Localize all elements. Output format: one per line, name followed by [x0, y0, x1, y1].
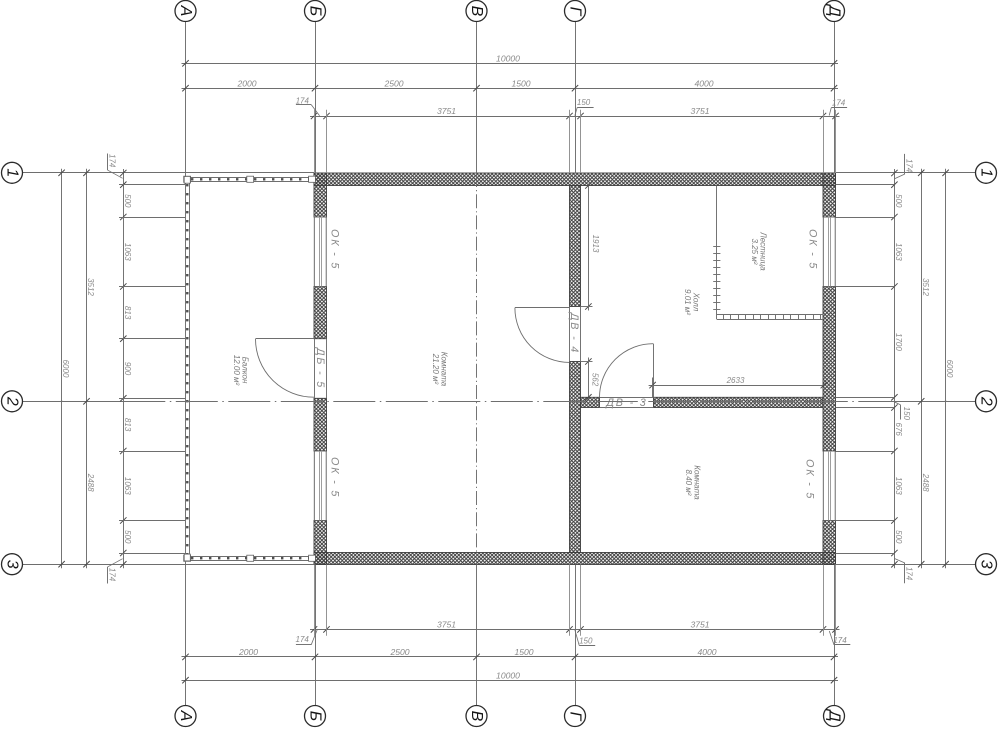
svg-text:Г: Г [567, 712, 584, 722]
svg-text:ДВ - 3: ДВ - 3 [605, 397, 647, 409]
svg-text:10000: 10000 [496, 53, 520, 63]
svg-text:1063: 1063 [894, 477, 903, 495]
svg-text:6000: 6000 [61, 360, 70, 378]
svg-text:174: 174 [107, 568, 116, 582]
svg-text:900: 900 [123, 362, 132, 376]
svg-text:2: 2 [4, 396, 21, 406]
svg-text:2500: 2500 [389, 647, 409, 657]
svg-text:А: А [177, 5, 194, 17]
svg-text:ОК - 5: ОК - 5 [807, 229, 819, 270]
svg-text:ДВ - 4: ДВ - 4 [568, 312, 580, 354]
svg-text:174: 174 [904, 567, 913, 581]
svg-text:3751: 3751 [437, 620, 456, 630]
svg-text:3751: 3751 [690, 620, 709, 630]
svg-text:4000: 4000 [697, 647, 716, 657]
svg-text:1063: 1063 [894, 243, 903, 261]
svg-text:10000: 10000 [496, 670, 520, 680]
svg-text:500: 500 [123, 194, 132, 208]
svg-text:2633: 2633 [726, 376, 745, 385]
svg-text:8.40 м²: 8.40 м² [684, 470, 693, 496]
svg-text:Д: Д [826, 3, 843, 16]
svg-text:813: 813 [123, 418, 132, 432]
svg-text:2488: 2488 [921, 473, 930, 492]
svg-text:А: А [177, 710, 194, 722]
svg-text:6000: 6000 [945, 360, 954, 378]
svg-text:813: 813 [123, 306, 132, 320]
svg-text:2: 2 [978, 396, 995, 406]
svg-text:Г: Г [567, 7, 584, 17]
svg-text:ОК - 5: ОК - 5 [329, 229, 341, 270]
svg-text:12.00 м²: 12.00 м² [232, 355, 241, 386]
svg-text:500: 500 [894, 530, 903, 544]
svg-text:3: 3 [4, 560, 21, 569]
svg-text:150: 150 [902, 407, 911, 421]
svg-text:9.01 м²: 9.01 м² [683, 289, 692, 315]
svg-text:1913: 1913 [591, 235, 600, 253]
svg-text:В: В [468, 711, 485, 722]
svg-text:2488: 2488 [86, 473, 95, 492]
svg-text:4000: 4000 [694, 78, 713, 88]
svg-text:3751: 3751 [690, 106, 709, 116]
svg-text:174: 174 [904, 159, 913, 173]
svg-text:1700: 1700 [894, 333, 903, 351]
svg-text:562: 562 [591, 373, 600, 387]
svg-text:1500: 1500 [514, 647, 533, 657]
svg-text:ОК - 5: ОК - 5 [804, 459, 816, 500]
svg-text:1: 1 [4, 168, 21, 177]
svg-text:500: 500 [123, 530, 132, 544]
svg-text:2500: 2500 [383, 78, 403, 88]
svg-text:500: 500 [894, 194, 903, 208]
svg-text:Б: Б [307, 711, 324, 721]
svg-text:150: 150 [579, 636, 593, 645]
svg-text:В: В [468, 6, 485, 17]
svg-text:174: 174 [832, 98, 846, 107]
svg-text:2000: 2000 [238, 647, 258, 657]
svg-text:174: 174 [833, 636, 847, 645]
svg-text:1063: 1063 [123, 243, 132, 261]
svg-text:3512: 3512 [921, 278, 930, 296]
svg-text:ДБ - 5: ДБ - 5 [314, 347, 326, 389]
svg-text:3: 3 [978, 560, 995, 569]
svg-text:1063: 1063 [123, 477, 132, 495]
svg-text:21.20 м²: 21.20 м² [431, 353, 440, 385]
svg-text:Б: Б [307, 6, 324, 16]
svg-text:ОК - 5: ОК - 5 [329, 457, 341, 498]
svg-text:1: 1 [978, 168, 995, 177]
svg-text:3.25 м²: 3.25 м² [750, 239, 759, 265]
svg-text:1500: 1500 [511, 78, 530, 88]
svg-text:150: 150 [577, 98, 591, 107]
svg-text:2000: 2000 [236, 78, 256, 88]
svg-text:174: 174 [107, 154, 116, 168]
svg-text:3751: 3751 [437, 106, 456, 116]
svg-text:174: 174 [296, 635, 310, 644]
svg-text:Д: Д [826, 708, 843, 721]
svg-text:676: 676 [894, 423, 903, 437]
svg-text:3512: 3512 [86, 278, 95, 296]
